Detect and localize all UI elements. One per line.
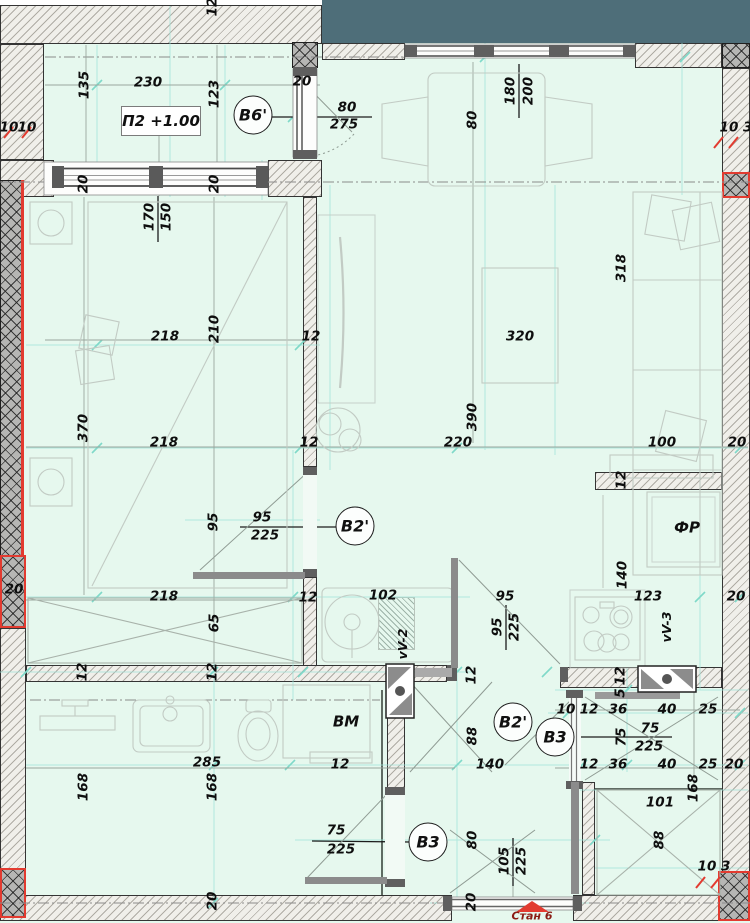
dimension-label: 10 3 — [720, 121, 750, 135]
dimension-label: 20 — [465, 893, 479, 912]
dimension-label: 12 — [206, 0, 220, 16]
dimension-label: 10 — [557, 703, 576, 717]
dimension-label: 95 — [491, 618, 505, 637]
dimension-label: 210 — [208, 315, 222, 343]
room-label: vV-3 — [661, 612, 674, 643]
dimension-label: 12 — [615, 471, 629, 490]
dimension-label: 105 — [498, 847, 512, 875]
dimension-label: 218 — [150, 436, 178, 450]
dimension-label: 140 — [476, 758, 504, 772]
door-marker: В3 — [536, 718, 575, 757]
dimension-label: 135 — [78, 71, 92, 99]
dimension-label: 168 — [687, 774, 701, 802]
dimension-label: 75 — [327, 824, 346, 838]
dimension-label: 20 — [206, 892, 220, 911]
coffee-table — [482, 268, 558, 383]
dimension-label: 123 — [634, 590, 662, 604]
dimension-label: 225 — [515, 847, 529, 875]
dimension-label: 20 — [727, 590, 746, 604]
floor-plan: П2 +1.00 Стан 6 121352301232080275101010… — [0, 0, 750, 921]
dimension-label: 25 — [699, 703, 718, 717]
tv-console — [318, 215, 375, 403]
dimension-label: 12 — [465, 666, 479, 685]
dimension-label: 10 3 — [698, 860, 731, 874]
dimension-label: 101 — [646, 796, 674, 810]
dimension-label: 12 — [331, 758, 350, 772]
room-label: ФР — [674, 521, 700, 536]
entrance-label: Стан 6 — [512, 911, 553, 922]
room-label: vV-2 — [397, 629, 410, 660]
dimension-label: 168 — [206, 773, 220, 801]
dimension-label: 88 — [466, 727, 480, 746]
dimension-label: 12 — [300, 436, 319, 450]
dimension-label: 180 — [504, 77, 518, 105]
dimension-label: 25 — [699, 758, 718, 772]
dimension-label: 12 — [580, 758, 599, 772]
dimension-label: 220 — [444, 436, 472, 450]
door-marker: В6' — [234, 96, 273, 135]
dimension-label: 40 — [658, 703, 677, 717]
washbasin — [133, 700, 210, 752]
dimension-label: 225 — [251, 529, 279, 543]
dimension-label: 12 — [302, 330, 321, 344]
dimension-label: 80 — [466, 831, 480, 850]
dimension-label: 320 — [506, 330, 534, 344]
dimension-label: 218 — [150, 590, 178, 604]
door-marker: В3 — [409, 823, 448, 862]
dimension-label: 12 — [299, 591, 318, 605]
dimension-label: 230 — [134, 76, 162, 90]
dimension-label: 200 — [522, 77, 536, 105]
dimension-label: 20 — [208, 175, 222, 194]
dimension-label: 285 — [193, 756, 221, 770]
red-section-marks — [4, 127, 738, 888]
dimension-label: 225 — [327, 843, 355, 857]
dimension-label: 20 — [725, 758, 744, 772]
dimension-label: 318 — [615, 254, 629, 282]
dimension-label: 12 — [206, 663, 220, 682]
dimension-label: 95 — [207, 513, 221, 532]
dimension-label: 5 — [614, 688, 628, 697]
dimension-label: 12 — [76, 663, 90, 682]
door-swings — [200, 78, 718, 893]
dimension-label: 20 — [293, 75, 312, 89]
dimension-label: 100 — [648, 436, 676, 450]
dimension-label: 75 — [615, 728, 629, 747]
dimension-label: 218 — [151, 330, 179, 344]
door-marker: В2' — [494, 703, 533, 742]
dimension-label: 80 — [466, 111, 480, 130]
dimension-label: 12 — [614, 667, 628, 686]
dimension-label: 36 — [609, 703, 628, 717]
dimension-label: 95 — [253, 511, 272, 525]
dimension-label: 40 — [658, 758, 677, 772]
linework-layer — [0, 0, 750, 921]
dimension-label: 95 — [496, 590, 515, 604]
dimension-label: 140 — [616, 561, 630, 589]
dimension-label: 65 — [208, 614, 222, 633]
door-marker: В2' — [336, 507, 375, 546]
dimension-label: 36 — [609, 758, 628, 772]
dimension-label: 275 — [330, 118, 358, 132]
vanity — [40, 716, 115, 730]
dimension-label: 10 — [0, 121, 18, 135]
dimension-label: 20 — [77, 175, 91, 194]
dimension-label: 10 — [18, 121, 37, 135]
dimension-label: 80 — [338, 101, 357, 115]
dimension-label: 102 — [369, 589, 397, 603]
dimension-label: 20 — [728, 436, 747, 450]
dimension-label: 170 — [143, 203, 157, 231]
dimension-label: 225 — [508, 613, 522, 641]
dimension-label: 20 — [5, 583, 24, 597]
dimension-label: 150 — [160, 203, 174, 231]
windows-doors — [44, 44, 680, 911]
dimension-label: 225 — [635, 740, 663, 754]
level-tag: П2 +1.00 — [121, 106, 201, 136]
dimension-label: 168 — [77, 773, 91, 801]
dimension-label: 390 — [466, 403, 480, 431]
level-tag-text: П2 +1.00 — [122, 112, 200, 130]
dimension-label: 123 — [208, 80, 222, 108]
dimension-label: 370 — [77, 414, 91, 442]
stove — [575, 597, 640, 660]
dimension-label: 75 — [641, 722, 660, 736]
dimension-label: 12 — [580, 703, 599, 717]
room-label: ВМ — [333, 715, 359, 730]
dimension-label: 88 — [653, 831, 667, 850]
